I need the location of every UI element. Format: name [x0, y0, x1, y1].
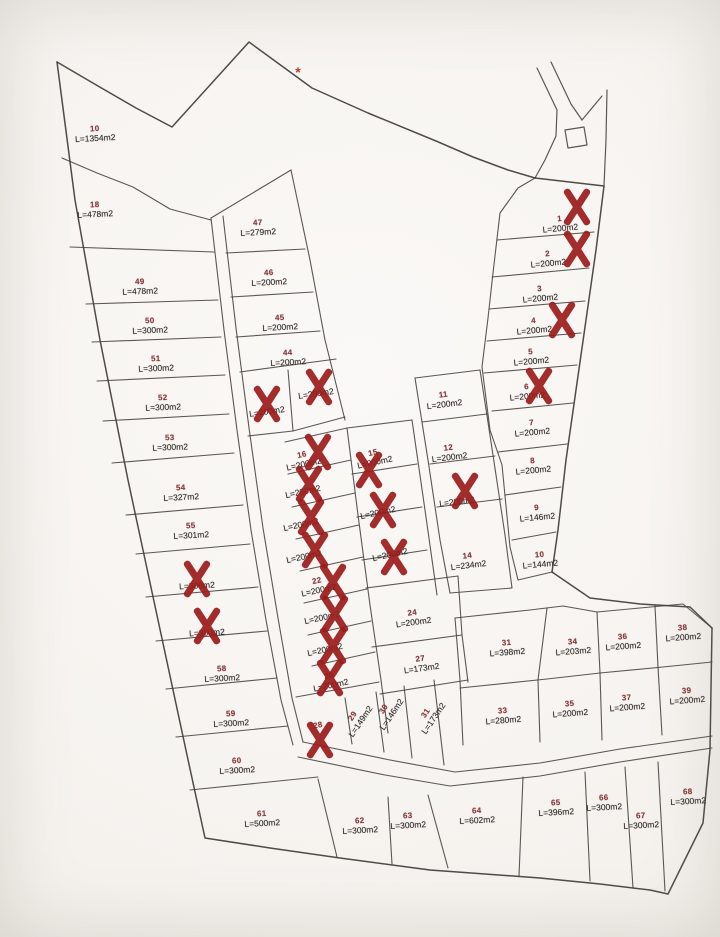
plot-area: L=300m2	[213, 718, 249, 729]
plot-label-53: 53L=300m2	[152, 433, 188, 452]
sold-x-mark	[379, 539, 409, 575]
plot-label-58: 58L=300m2	[204, 664, 241, 684]
plot-label-51: 51L=300m2	[138, 354, 174, 373]
plot-area: L=396m2	[538, 807, 574, 818]
plot-label-47: 47L=279m2	[240, 218, 277, 238]
plot-label-37: 37L=200m2	[609, 693, 646, 713]
plot-label-18: 18L=478m2	[77, 200, 114, 220]
plot-label-49: 49L=478m2	[122, 277, 158, 296]
plot-area: L=300m2	[342, 825, 378, 836]
plot-label-33: 33L=280m2	[485, 706, 522, 726]
sold-x-mark	[300, 532, 330, 568]
plot-label-10: 10L=1354m2	[74, 124, 115, 144]
plot-label-7: 7L=200m2	[513, 418, 550, 439]
sold-x-mark	[305, 722, 335, 758]
sold-x-mark	[354, 452, 384, 488]
plot-area: L=602m2	[459, 815, 495, 826]
sold-x-mark	[562, 189, 592, 225]
plot-label-68: 68L=300m2	[670, 787, 707, 807]
sold-x-mark	[562, 231, 592, 267]
plot-label-55: 55L=301m2	[173, 521, 210, 541]
sold-x-mark	[304, 369, 334, 405]
plot-area: L=478m2	[77, 209, 113, 220]
sold-x-mark	[450, 473, 480, 509]
plot-label-61: 61L=500m2	[244, 809, 281, 829]
plot-area: L=279m2	[240, 227, 276, 238]
sold-x-mark	[182, 561, 212, 597]
plot-label-65: 65L=396m2	[538, 798, 575, 818]
plot-area: L=301m2	[173, 530, 209, 541]
sold-x-mark	[252, 386, 282, 422]
plot-label-45: 45L=200m2	[262, 313, 299, 333]
plot-area: L=300m2	[670, 796, 706, 807]
plot-area: L=200m2	[270, 357, 306, 368]
plot-area: L=478m2	[122, 286, 158, 296]
plot-label-66: 66L=300m2	[586, 793, 623, 813]
plot-label-63: 63L=300m2	[390, 811, 427, 831]
plot-label-5: 5L=200m2	[512, 347, 549, 368]
sold-x-mark	[315, 660, 345, 696]
plot-area: L=300m2	[390, 820, 426, 831]
plot-area: L=300m2	[586, 802, 622, 813]
plot-area: L=327m2	[163, 492, 199, 503]
plot-label-52: 52L=300m2	[145, 393, 181, 412]
plot-area: L=300m2	[623, 820, 659, 831]
plot-area: L=300m2	[132, 325, 168, 335]
plot-area: L=300m2	[138, 363, 174, 373]
sold-x-mark	[296, 499, 326, 535]
plot-label-50: 50L=300m2	[132, 316, 168, 335]
plot-label-60: 60L=300m2	[219, 756, 256, 776]
plot-label-10: 10L=144m2	[521, 550, 558, 571]
small-structure	[565, 127, 587, 148]
plot-label-31: 31L=398m2	[489, 638, 526, 658]
plot-label-67: 67L=300m2	[623, 811, 660, 831]
plot-label-44: 44L=200m2	[270, 348, 307, 368]
plot-area: L=300m2	[204, 673, 240, 684]
sold-x-mark	[368, 492, 398, 528]
plot-area: L=300m2	[145, 402, 181, 412]
sold-x-mark	[294, 466, 324, 502]
plot-label-64: 64L=602m2	[459, 806, 496, 826]
land-plot-map: 10L=1354m218L=478m249L=478m250L=300m251L…	[0, 0, 720, 937]
access-roads	[535, 62, 607, 186]
sold-x-mark	[547, 302, 577, 338]
plot-area: L=300m2	[219, 765, 255, 776]
plot-label-36: 36L=200m2	[605, 632, 642, 652]
plot-area: L=200m2	[251, 277, 287, 288]
sold-x-mark	[318, 628, 348, 664]
plot-label-38: 38L=200m2	[665, 623, 702, 643]
site-boundary	[57, 42, 712, 894]
plot-label-62: 62L=300m2	[342, 816, 379, 836]
plot-area: L=500m2	[244, 818, 280, 829]
road-bottom	[298, 736, 712, 786]
plot-label-35: 35L=200m2	[552, 699, 589, 719]
plot-label-59: 59L=300m2	[213, 709, 250, 729]
plot-label-8: 8L=200m2	[514, 456, 551, 477]
plot-label-34: 34L=203m2	[555, 637, 592, 657]
plot-label-54: 54L=327m2	[163, 483, 200, 503]
red-asterisk-mark: *	[295, 64, 300, 80]
sold-x-mark	[524, 368, 554, 404]
plot-label-46: 46L=200m2	[251, 268, 288, 288]
plot-label-2: 2L=200m2	[529, 249, 566, 270]
sold-x-mark	[192, 608, 222, 644]
plot-area: L=300m2	[152, 442, 188, 452]
plot-area: L=200m2	[262, 322, 298, 333]
plot-label-39: 39L=200m2	[669, 686, 706, 706]
plot-label-9: 9L=146m2	[518, 503, 555, 524]
